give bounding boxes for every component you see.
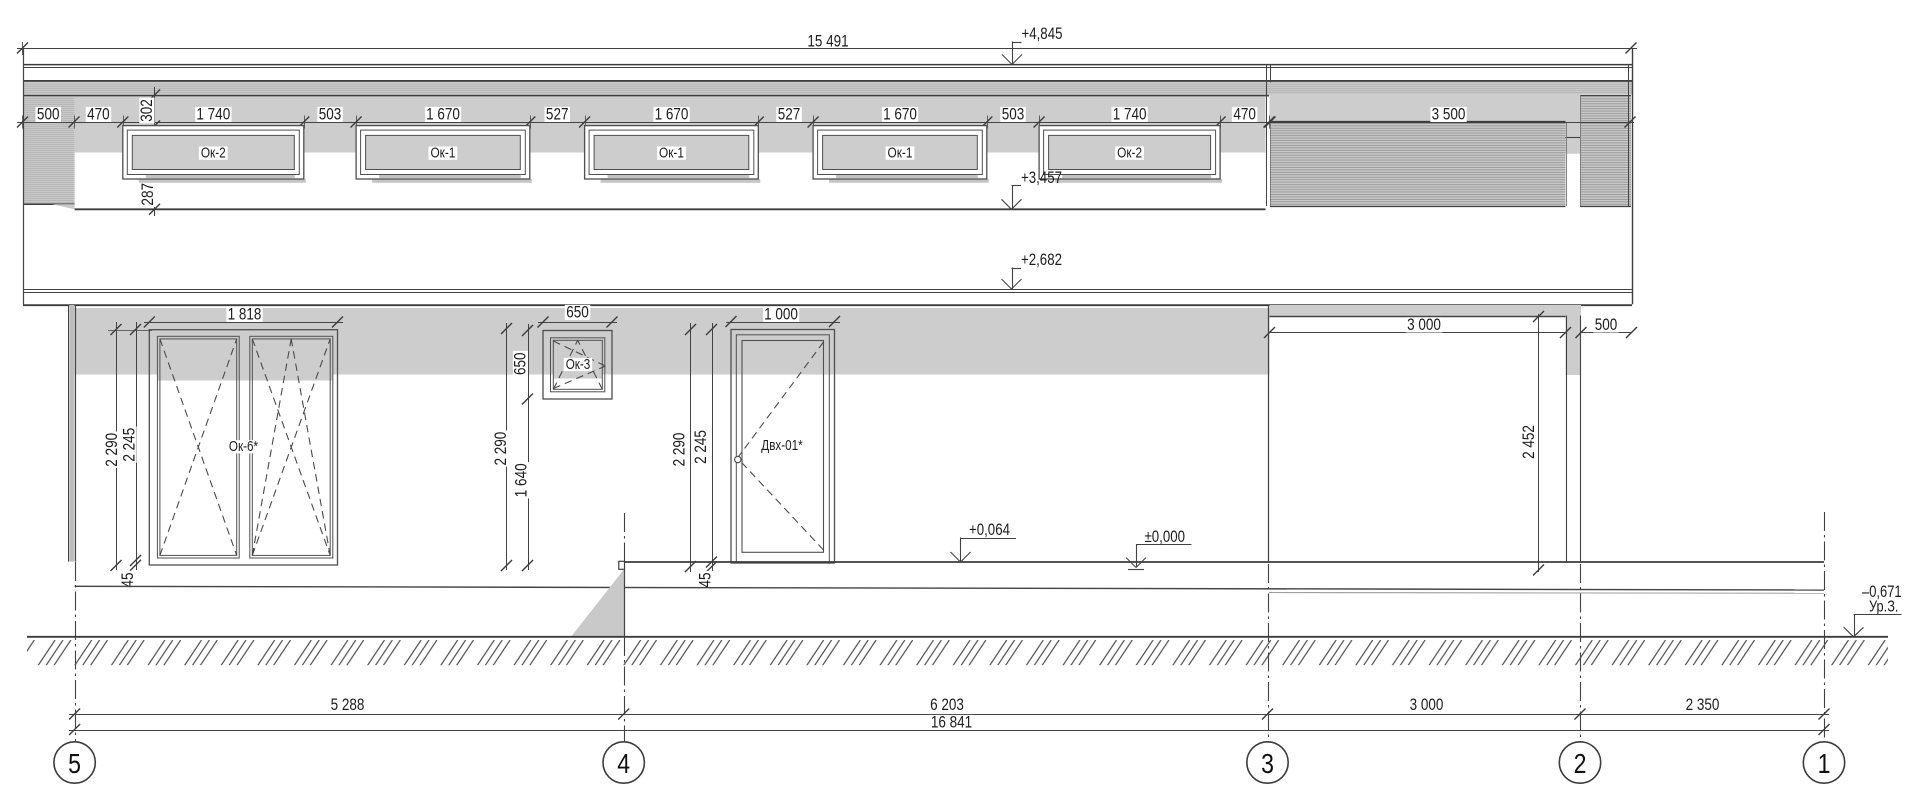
svg-text:500: 500: [37, 105, 60, 124]
svg-text:+4,845: +4,845: [1022, 25, 1063, 44]
svg-text:Ок-1: Ок-1: [659, 144, 684, 161]
svg-text:±0,000: ±0,000: [1145, 528, 1185, 547]
svg-text:2 245: 2 245: [120, 428, 139, 462]
svg-text:45: 45: [696, 572, 715, 587]
svg-text:2 350: 2 350: [1686, 696, 1720, 715]
svg-text:Двх-01*: Двх-01*: [761, 437, 802, 454]
svg-text:1 670: 1 670: [883, 105, 917, 124]
svg-text:6 203: 6 203: [930, 696, 964, 715]
svg-text:1: 1: [1818, 749, 1831, 779]
svg-text:287: 287: [139, 183, 158, 206]
svg-text:3: 3: [1261, 749, 1274, 779]
svg-text:3 500: 3 500: [1432, 105, 1466, 124]
svg-text:3 000: 3 000: [1410, 696, 1444, 715]
svg-text:1 000: 1 000: [764, 305, 798, 324]
svg-text:5 288: 5 288: [331, 696, 365, 715]
svg-text:1 740: 1 740: [1113, 105, 1147, 124]
svg-text:Ок-1: Ок-1: [430, 144, 455, 161]
svg-text:Ок-6*: Ок-6*: [229, 438, 258, 455]
svg-text:+2,682: +2,682: [1021, 251, 1062, 270]
svg-text:Ок-2: Ок-2: [201, 144, 226, 161]
svg-text:650: 650: [511, 352, 530, 375]
svg-text:4: 4: [617, 749, 630, 779]
svg-text:2 290: 2 290: [492, 432, 511, 466]
svg-text:15 491: 15 491: [807, 32, 848, 51]
svg-text:650: 650: [566, 303, 589, 322]
svg-text:2: 2: [1574, 749, 1587, 779]
svg-text:527: 527: [546, 105, 569, 124]
svg-text:+3,457: +3,457: [1021, 168, 1062, 187]
svg-text:470: 470: [1233, 105, 1256, 124]
svg-text:Ок-1: Ок-1: [888, 144, 913, 161]
svg-text:527: 527: [778, 105, 801, 124]
svg-text:1 670: 1 670: [655, 105, 689, 124]
svg-text:5: 5: [68, 749, 81, 779]
svg-text:Ок-2: Ок-2: [1117, 144, 1142, 161]
svg-text:503: 503: [1002, 105, 1025, 124]
svg-text:16 841: 16 841: [931, 713, 972, 732]
svg-text:2 290: 2 290: [103, 433, 122, 467]
svg-text:+0,064: +0,064: [969, 521, 1010, 540]
svg-text:1 740: 1 740: [196, 105, 230, 124]
svg-text:45: 45: [119, 572, 138, 587]
svg-text:3 000: 3 000: [1407, 316, 1441, 335]
svg-text:470: 470: [87, 105, 110, 124]
svg-text:Ок-3: Ок-3: [566, 356, 591, 373]
svg-text:1 818: 1 818: [228, 305, 262, 324]
svg-text:1 670: 1 670: [426, 105, 460, 124]
svg-text:302: 302: [138, 99, 157, 122]
svg-text:500: 500: [1595, 316, 1618, 335]
svg-text:2 245: 2 245: [692, 430, 711, 464]
svg-text:Ур.З.: Ур.З.: [1869, 598, 1898, 616]
svg-text:503: 503: [319, 105, 342, 124]
svg-text:2 290: 2 290: [670, 433, 689, 467]
svg-text:2 452: 2 452: [1520, 425, 1539, 459]
svg-text:1 640: 1 640: [512, 463, 531, 497]
